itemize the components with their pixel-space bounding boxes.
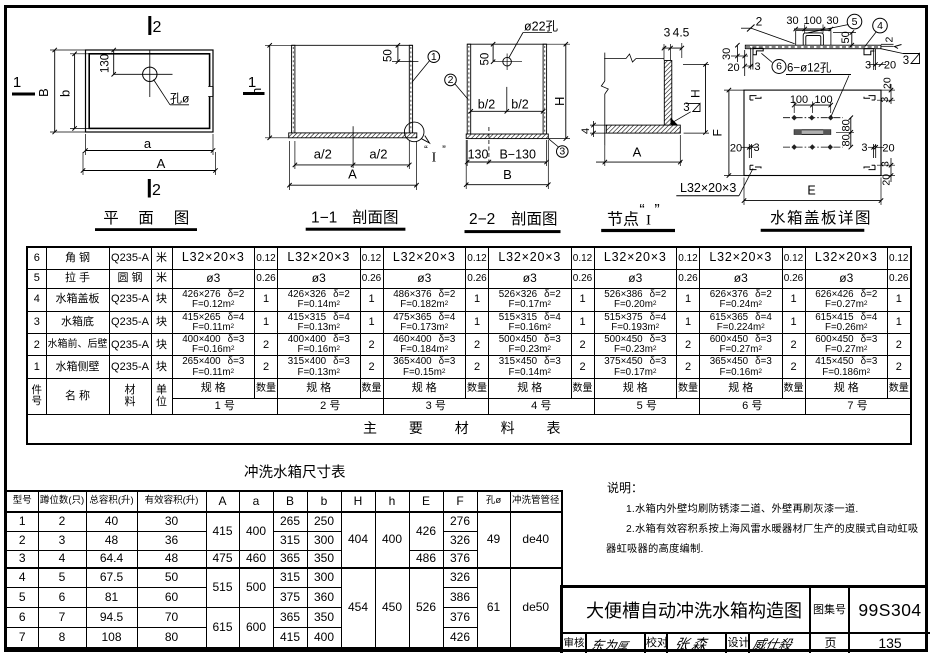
svg-text:B: B [36,88,51,97]
svg-text:2: 2 [153,19,162,36]
svg-text:4: 4 [580,128,592,134]
svg-text:I: I [646,213,651,229]
svg-text:L32×20×3: L32×20×3 [680,181,736,195]
svg-text:节点: 节点 [607,211,639,229]
svg-text:80: 80 [841,134,853,146]
svg-text:I: I [432,151,437,166]
svg-text:3: 3 [903,55,909,67]
svg-text:2: 2 [756,15,763,29]
svg-text:5: 5 [852,16,858,28]
svg-text:6−ø12孔: 6−ø12孔 [787,62,832,75]
svg-text:B: B [503,167,512,182]
svg-text:2: 2 [448,74,454,86]
svg-text:“: “ [639,202,644,219]
svg-text:H: H [552,97,567,106]
svg-text:b/2: b/2 [511,98,528,112]
svg-text:水箱盖板详图: 水箱盖板详图 [770,209,872,227]
svg-text:100: 100 [814,94,832,106]
svg-text:2−2: 2−2 [469,211,495,228]
svg-text:3: 3 [861,142,867,154]
svg-text:”: ” [654,202,659,219]
svg-text:100: 100 [790,94,808,106]
svg-text:h: h [249,88,264,95]
svg-text:a/2: a/2 [314,147,332,162]
svg-text:1: 1 [431,51,437,63]
svg-text:3: 3 [879,97,891,103]
svg-text:4: 4 [877,20,883,32]
svg-text:1−1: 1−1 [311,210,337,227]
svg-text:50: 50 [383,49,395,62]
svg-text:ø22孔: ø22孔 [524,20,559,34]
svg-text:F: F [711,129,725,136]
svg-text:A: A [157,156,166,171]
svg-text:剖面图: 剖面图 [352,209,399,227]
svg-text:3: 3 [754,61,760,73]
svg-text:”: ” [442,144,446,156]
svg-text:20: 20 [730,143,742,155]
svg-text:130: 130 [468,148,489,162]
svg-text:20: 20 [882,143,894,155]
svg-text:30: 30 [786,15,798,27]
svg-text:20: 20 [882,77,894,89]
svg-text:80: 80 [841,119,853,131]
svg-text:2: 2 [884,37,896,43]
svg-text:30: 30 [721,48,733,60]
svg-text:H: H [689,89,703,98]
svg-text:面: 面 [138,210,154,227]
svg-text:3: 3 [880,161,892,167]
svg-text:A: A [348,167,357,182]
svg-text:6: 6 [776,61,782,73]
svg-text:3: 3 [559,146,565,158]
svg-text:剖面图: 剖面图 [511,210,558,228]
svg-text:30: 30 [826,15,838,27]
svg-text:图: 图 [174,210,190,227]
svg-text:b/2: b/2 [478,98,495,112]
svg-text:a/2: a/2 [369,147,387,162]
svg-text:20: 20 [881,174,893,186]
svg-text:130: 130 [100,54,112,73]
svg-text:3: 3 [664,26,671,40]
svg-text:A: A [633,145,642,160]
svg-text:“: “ [424,144,428,156]
svg-text:20: 20 [727,62,739,74]
svg-text:3: 3 [754,142,760,154]
svg-text:平: 平 [103,210,119,227]
svg-text:20: 20 [884,60,896,72]
svg-text:孔ø: 孔ø [170,92,190,106]
svg-text:b: b [58,90,73,97]
svg-text:2: 2 [152,182,161,199]
svg-text:1: 1 [13,74,21,91]
svg-text:50: 50 [480,53,492,66]
svg-text:50: 50 [840,31,852,43]
svg-text:3: 3 [865,60,871,72]
svg-text:B−130: B−130 [499,148,536,162]
svg-text:4.5: 4.5 [673,26,690,40]
svg-text:100: 100 [804,15,822,27]
svg-text:a: a [144,136,152,151]
svg-text:E: E [807,184,815,198]
